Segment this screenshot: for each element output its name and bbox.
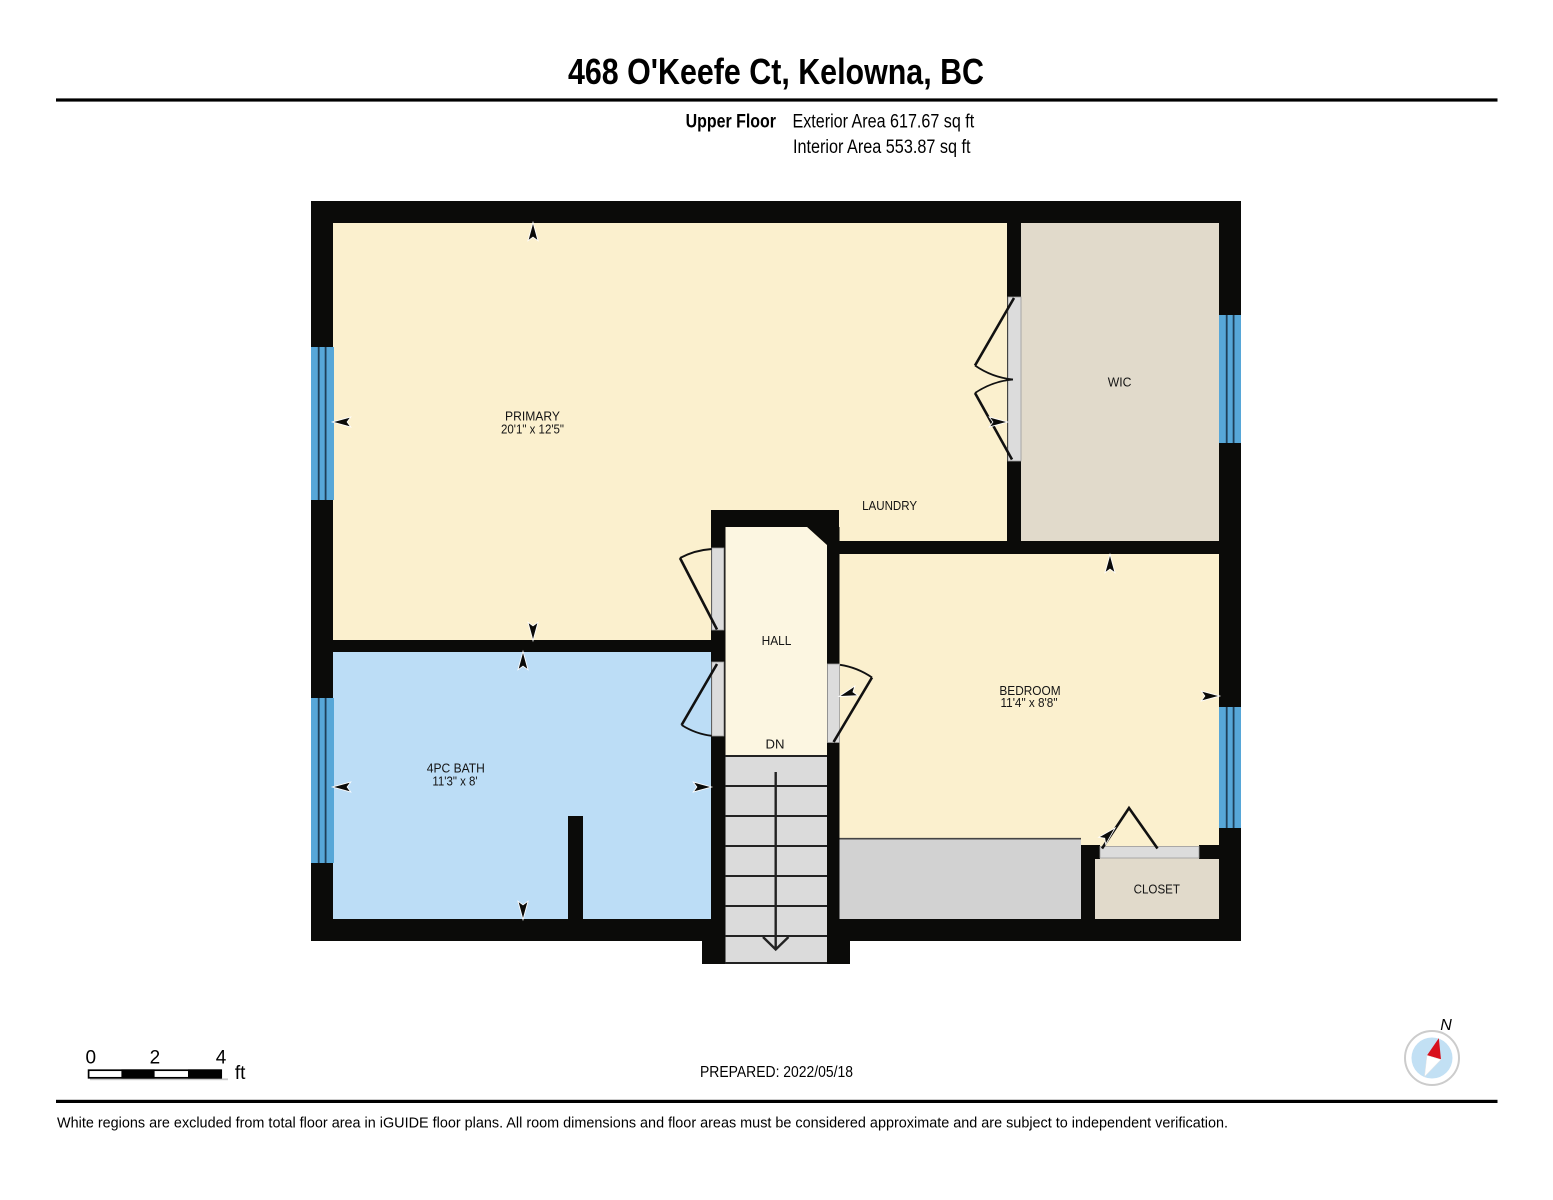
svg-text:11'4" x 8'8": 11'4" x 8'8" <box>1001 695 1058 710</box>
svg-text:N: N <box>1440 1017 1452 1034</box>
svg-text:468 O'Keefe Ct, Kelowna, BC: 468 O'Keefe Ct, Kelowna, BC <box>568 51 984 92</box>
svg-text:PREPARED: 2022/05/18: PREPARED: 2022/05/18 <box>700 1064 853 1081</box>
svg-text:Interior Area 553.87 sq ft: Interior Area 553.87 sq ft <box>793 137 971 158</box>
svg-text:WIC: WIC <box>1108 374 1132 389</box>
svg-text:DN: DN <box>766 737 785 752</box>
svg-text:White regions are excluded fro: White regions are excluded from total fl… <box>57 1115 1228 1132</box>
svg-text:LAUNDRY: LAUNDRY <box>862 498 917 513</box>
svg-text:HALL: HALL <box>762 633 792 648</box>
svg-text:2: 2 <box>150 1048 161 1069</box>
svg-text:20'1" x 12'5": 20'1" x 12'5" <box>501 422 564 437</box>
svg-text:Upper Floor: Upper Floor <box>686 111 777 132</box>
svg-text:CLOSET: CLOSET <box>1134 882 1180 897</box>
svg-text:Exterior Area 617.67 sq ft: Exterior Area 617.67 sq ft <box>793 111 975 132</box>
svg-text:ft: ft <box>235 1063 246 1084</box>
svg-text:4: 4 <box>216 1048 227 1069</box>
svg-text:0: 0 <box>86 1048 97 1069</box>
svg-text:11'3" x 8': 11'3" x 8' <box>432 774 477 789</box>
